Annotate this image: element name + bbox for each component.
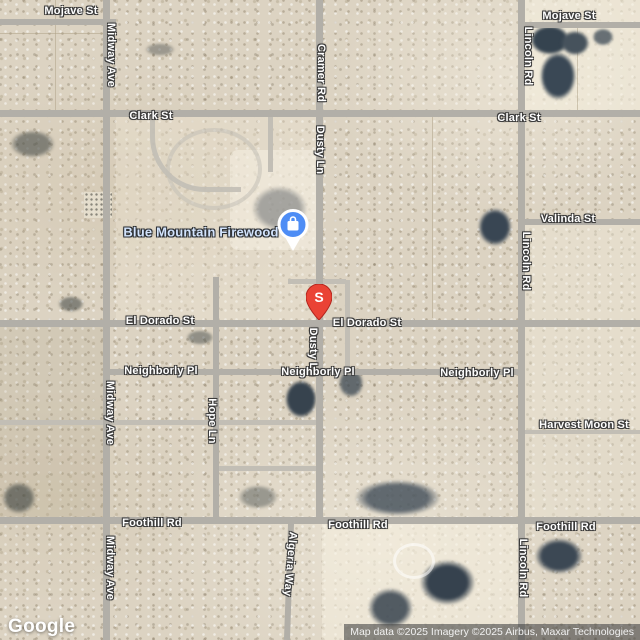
vegetation-cluster: [592, 28, 614, 46]
vegetation-cluster: [2, 482, 36, 514]
street-label-cramer: Cramer Rd: [315, 44, 327, 102]
street-label-dusty-top: Dusty Ln: [314, 126, 326, 175]
street-label-lincoln-mid: Lincoln Rd: [520, 232, 532, 291]
driveway-vertical: [268, 117, 273, 172]
street-label-midway-bottom: Midway Ave: [104, 536, 116, 600]
street-label-clark-west: Clark St: [129, 110, 172, 122]
street-label-lincoln-top: Lincoln Rd: [522, 27, 534, 86]
street-label-el-dorado-east: El Dorado St: [333, 317, 401, 329]
vegetation-cluster: [238, 485, 278, 509]
street-label-foothill-center: Foothill Rd: [328, 519, 388, 531]
street-label-mojave-west: Mojave St: [44, 5, 97, 17]
satellite-map-canvas[interactable]: Mojave St Mojave St Midway Ave Cramer Rd…: [0, 0, 640, 640]
road-unnamed-horizontal: [0, 420, 322, 425]
street-label-foothill-west: Foothill Rd: [122, 517, 182, 529]
road-unnamed-horizontal: [215, 466, 318, 471]
parcel: [525, 430, 640, 523]
circular-track: [393, 543, 435, 579]
street-label-neighborly-east: Neighborly Pl: [440, 367, 514, 379]
vegetation-cluster: [560, 30, 590, 56]
street-label-hope: Hope Ln: [206, 398, 218, 443]
street-label-neighborly-west: Neighborly Pl: [124, 365, 198, 377]
vegetation-cluster: [535, 538, 583, 574]
vegetation-cluster: [58, 296, 84, 312]
street-label-mojave-east: Mojave St: [542, 10, 595, 22]
vegetation-cluster: [145, 43, 175, 56]
street-label-valinda: Valinda St: [541, 213, 596, 225]
vegetation-cluster: [285, 380, 317, 418]
street-label-midway-mid: Midway Ave: [104, 381, 116, 445]
vegetation-cluster: [540, 52, 576, 100]
street-label-neighborly-center: Neighborly Pl: [281, 366, 355, 378]
street-label-harvest-moon: Harvest Moon St: [539, 419, 629, 431]
vegetation-cluster: [10, 130, 55, 158]
street-label-foothill-east: Foothill Rd: [536, 521, 596, 533]
poi-marker-blue-mountain-firewood[interactable]: [275, 208, 311, 257]
road-mojave-st-west: [0, 19, 116, 25]
parcel-line: [432, 117, 433, 318]
vegetation-cluster: [368, 588, 413, 628]
road-mojave-st-east: [522, 22, 640, 28]
street-label-el-dorado-west: El Dorado St: [126, 315, 194, 327]
poi-label-blue-mountain-firewood[interactable]: Blue Mountain Firewood: [123, 225, 278, 240]
parcel-line: [0, 33, 103, 34]
google-logo[interactable]: Google: [8, 616, 75, 638]
pin-letter: S: [314, 289, 323, 305]
street-label-lincoln-bottom: Lincoln Rd: [517, 539, 529, 598]
driveway-loop: [166, 128, 262, 210]
vegetation-cluster: [355, 480, 440, 516]
search-result-pin[interactable]: S: [306, 284, 332, 325]
shopping-bag-icon: [275, 208, 311, 252]
vegetation-cluster: [186, 330, 214, 345]
street-label-midway-top: Midway Ave: [105, 23, 117, 87]
street-label-clark-east: Clark St: [497, 112, 540, 124]
map-attribution: Map data ©2025 Imagery ©2025 Airbus, Max…: [344, 624, 640, 640]
map-pin-icon: S: [306, 284, 332, 320]
vegetation-cluster: [478, 208, 512, 246]
